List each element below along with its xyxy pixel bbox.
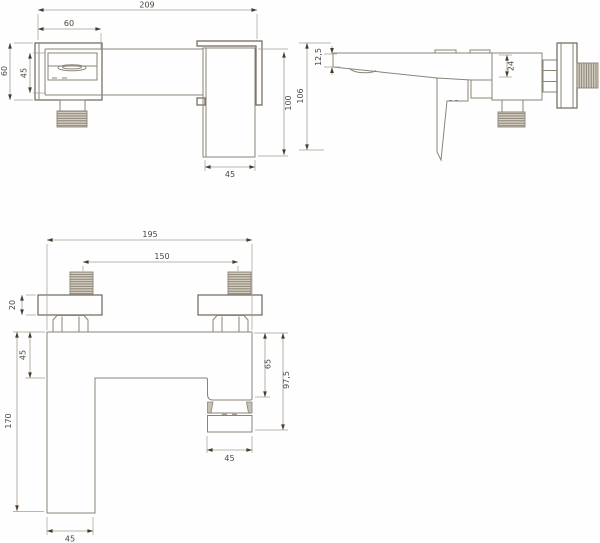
mixer-body-front [47,332,252,513]
dim-front-plate-thickness: 20 [8,295,36,315]
dim-label-60-offset: 60 [64,19,74,28]
dim-label-60-depth: 60 [0,66,9,76]
drawing-canvas: 209 60 60 45 [0,0,600,543]
wall-bracket-right-tab [197,98,205,105]
dim-label-65: 65 [264,359,273,369]
dim-front-body-height: 45 [13,332,45,378]
dim-front-outlet-width: 45 [207,436,252,463]
aerator-inner-ring [63,66,82,69]
spout-underside-edge [333,67,437,78]
cartridge-housing-side [471,80,492,98]
dim-front-inlet-spacing: 150 [83,252,238,271]
wall-bracket-right-plan [197,41,262,105]
shower-outlet-block-plan [203,48,255,157]
shower-hose-connector-front [208,416,253,433]
dim-label-20: 20 [8,300,17,310]
valve-body-side [492,53,542,100]
front-view-geometry [38,272,262,513]
dim-top-spout-offset: 60 [38,19,101,50]
hex-nut-left-front [53,316,88,333]
top-trim-plate-2 [470,50,490,53]
top-view: 209 60 60 45 [0,1,293,180]
hose-outlet-neck-side [502,100,523,112]
dim-top-outlet-width: 45 [205,160,255,179]
dim-label-97-5: 97,5 [282,371,291,389]
dim-top-body-depth: 45 [20,53,47,93]
outlet-collar-wedge-left [208,402,214,413]
inlet-thread-left [70,272,93,295]
top-view-dimensions: 209 60 60 45 [0,1,293,180]
side-view-geometry [333,43,598,160]
dim-label-195: 195 [142,230,157,239]
dim-label-150: 150 [154,252,169,261]
dim-label-170: 170 [4,413,13,428]
top-trim-plate-1 [435,50,456,53]
outlet-collar-wedge-right [247,402,253,413]
dim-side-root-height: 24 [499,55,516,77]
dim-label-209: 209 [139,1,154,10]
side-view: 106 12,5 24 [296,43,598,160]
lever-handle-side [437,78,468,160]
technical-drawing: 209 60 60 45 [0,0,600,543]
dim-label-12-5: 12,5 [314,48,323,66]
dim-label-100: 100 [284,95,293,110]
dim-front-step-depth: 65 [255,333,273,397]
hose-outlet-thread-plan [57,111,87,127]
top-view-geometry [35,41,262,157]
side-view-dimensions: 106 12,5 24 [296,43,516,150]
dim-label-45-column: 45 [65,535,75,543]
dim-front-outlet-drop: 97,5 [254,333,291,430]
dim-side-tip-height: 12,5 [314,46,340,75]
dim-label-24: 24 [507,61,516,71]
dim-label-45-outlet-plan: 45 [225,170,235,179]
hose-outlet-neck-plan [60,100,85,111]
dim-label-45-depth: 45 [20,68,29,78]
front-view: 195 150 20 45 [4,230,291,543]
inlet-thread-side [577,63,598,88]
hex-nut-right-front [213,316,248,333]
inlet-thread-right [228,272,251,295]
wall-flange-side [557,43,577,108]
hose-outlet-thread-side [498,112,525,127]
wall-plate-left-front [38,295,102,315]
dim-label-45-outlet: 45 [224,454,234,463]
dim-front-column-width: 45 [47,517,93,543]
hex-nut-side [543,60,557,92]
handle-pivot-edge [437,78,471,80]
dim-label-106: 106 [296,88,305,103]
dim-top-outlet-length: 100 [258,49,293,156]
wall-plate-right-front [198,295,262,315]
dim-label-45-body: 45 [19,350,28,360]
